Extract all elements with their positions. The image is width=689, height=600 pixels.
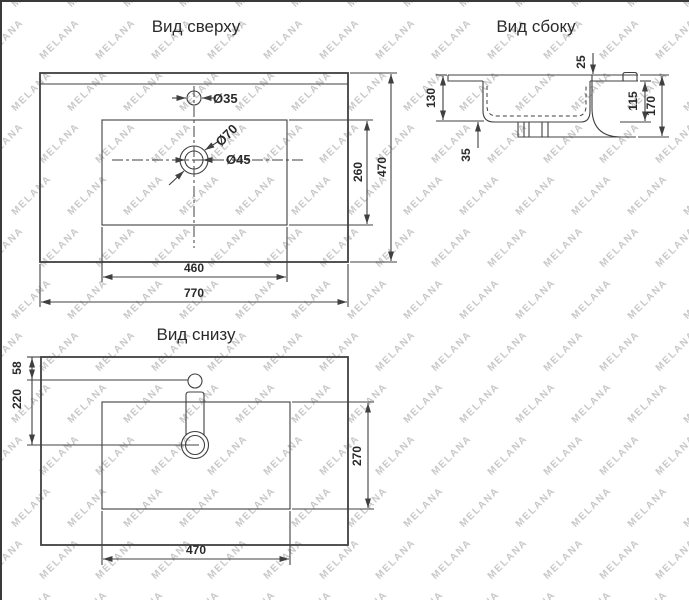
dim-label-drain-outer: Ø70 xyxy=(213,121,241,149)
dim-label-overall-depth: 470 xyxy=(375,157,389,177)
side-front-lip xyxy=(448,75,483,81)
side-view: Вид сбоку 25 130 xyxy=(424,17,669,162)
dim-label-rim-thickness: 25 xyxy=(574,55,588,69)
top-view-title: Вид сверху xyxy=(152,17,241,36)
dim-label-bowl-width: 460 xyxy=(184,261,204,275)
dim-label-drain-offset: 220 xyxy=(10,389,24,409)
dim-label-recess-depth: 270 xyxy=(350,446,364,466)
window-border-left xyxy=(0,0,2,600)
top-view: Вид сверху Ø35 Ø70 Ø45 xyxy=(40,17,397,307)
arrow xyxy=(169,171,184,185)
bottom-view: Вид снизу 58 220 270 xyxy=(10,325,374,565)
dim-label-back-height: 115 xyxy=(626,91,640,111)
dim-label-front-height: 130 xyxy=(424,88,438,108)
bottom-drain-slot xyxy=(186,392,204,435)
dim-label-faucet-hole: Ø35 xyxy=(213,91,238,106)
bottom-outer-outline xyxy=(41,357,348,545)
technical-drawing-page: MELANAMELANAMELANAMELANAMELANAMELANAMELA… xyxy=(0,0,689,600)
side-view-title: Вид сбоку xyxy=(496,17,576,36)
sink-technical-drawing: Вид сверху Ø35 Ø70 Ø45 xyxy=(0,0,689,600)
bottom-faucet-hole-circle xyxy=(188,374,202,388)
dim-label-drain-drop: 35 xyxy=(459,148,473,162)
dim-label-overall-height: 170 xyxy=(644,96,658,116)
side-bowl-inner-dashed xyxy=(487,86,586,116)
dim-label-bowl-depth: 260 xyxy=(351,162,365,182)
window-border-top xyxy=(0,0,689,2)
dim-label-drain-inner: Ø45 xyxy=(226,152,251,167)
dim-label-faucet-offset: 58 xyxy=(10,361,24,375)
side-deck-end-cap xyxy=(623,73,637,82)
dim-label-overall-width: 770 xyxy=(184,286,204,300)
dim-label-recess-width: 470 xyxy=(186,543,206,557)
bottom-recess-outline xyxy=(102,402,290,509)
side-drain-boss xyxy=(518,122,548,137)
bottom-view-title: Вид снизу xyxy=(157,325,236,344)
